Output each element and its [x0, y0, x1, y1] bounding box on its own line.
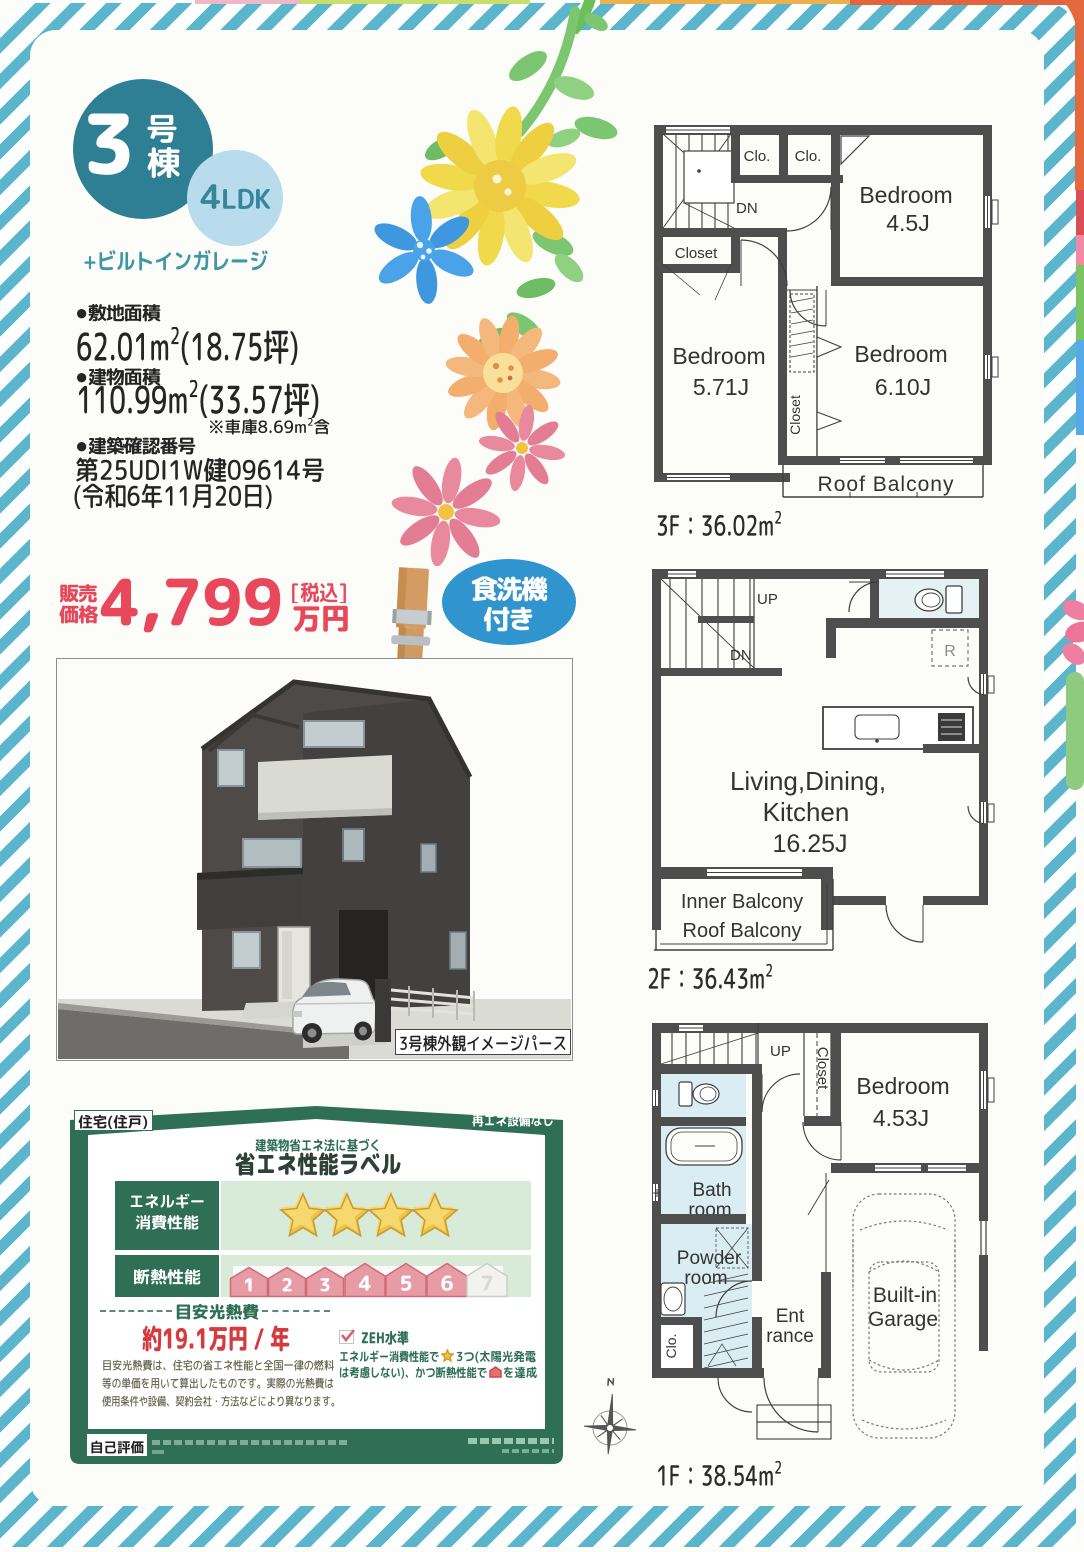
svg-text:6.10J: 6.10J [875, 374, 931, 400]
svg-text:UP: UP [770, 1043, 791, 1060]
svg-text:Inner Balcony: Inner Balcony [681, 891, 803, 913]
svg-text:Roof Balcony: Roof Balcony [818, 473, 955, 496]
svg-text:room: room [684, 1268, 727, 1289]
svg-text:4.5J: 4.5J [886, 210, 929, 236]
svg-text:Built-in: Built-in [873, 1284, 937, 1307]
svg-text:Clo.: Clo. [744, 148, 771, 165]
svg-text:16.25J: 16.25J [772, 830, 847, 858]
svg-text:Roof Balcony: Roof Balcony [683, 920, 802, 942]
svg-text:Clo.: Clo. [663, 1334, 679, 1359]
svg-text:Closet: Closet [675, 245, 718, 262]
svg-text:Bedroom: Bedroom [854, 341, 947, 367]
svg-text:Powder: Powder [677, 1248, 742, 1269]
svg-text:Garage: Garage [868, 1308, 938, 1331]
svg-text:Kitchen: Kitchen [763, 797, 850, 827]
svg-text:Bedroom: Bedroom [672, 343, 765, 369]
svg-text:Bedroom: Bedroom [859, 182, 952, 208]
svg-text:rance: rance [766, 1326, 814, 1347]
svg-text:Bath: Bath [692, 1180, 731, 1201]
svg-text:5.71J: 5.71J [693, 374, 749, 400]
svg-text:Living,Dining,: Living,Dining, [730, 766, 886, 796]
svg-text:4.53J: 4.53J [873, 1105, 929, 1131]
svg-text:R: R [944, 643, 956, 660]
svg-text:UP: UP [757, 591, 778, 608]
svg-text:Clo.: Clo. [795, 148, 822, 165]
svg-text:DN: DN [730, 647, 752, 664]
svg-text:Ent: Ent [776, 1306, 805, 1327]
svg-text:DN: DN [736, 200, 758, 217]
svg-text:Closet: Closet [814, 1047, 831, 1090]
svg-text:Closet: Closet [787, 395, 803, 435]
svg-text:Bedroom: Bedroom [856, 1073, 949, 1099]
